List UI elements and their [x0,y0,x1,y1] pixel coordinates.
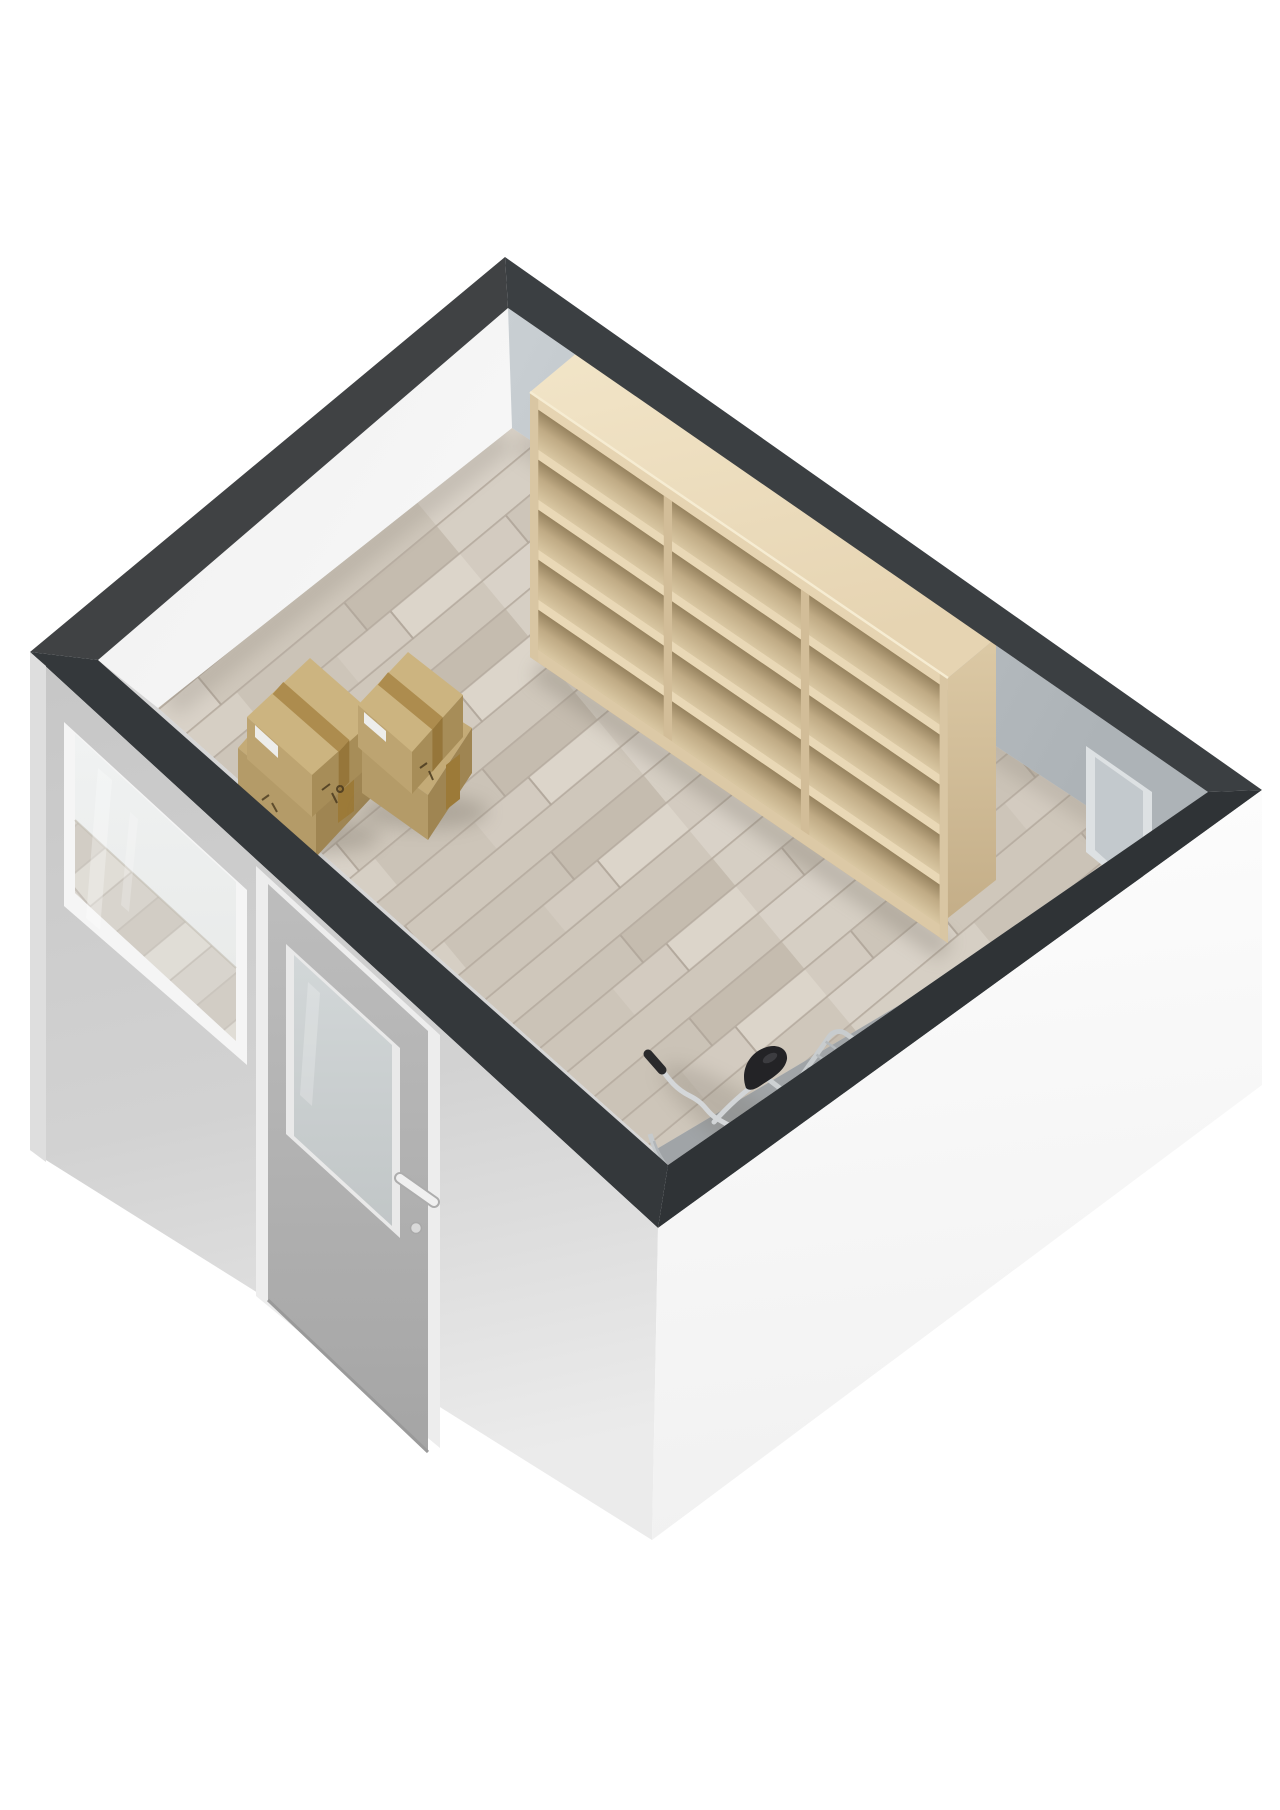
bookshelf-side-right [948,638,996,918]
exterior-wall-corner-edge [30,652,46,1162]
floorplan-3d-render [0,0,1280,1810]
floorplan-canvas [0,0,1280,1810]
door-keyhole [411,1223,422,1234]
